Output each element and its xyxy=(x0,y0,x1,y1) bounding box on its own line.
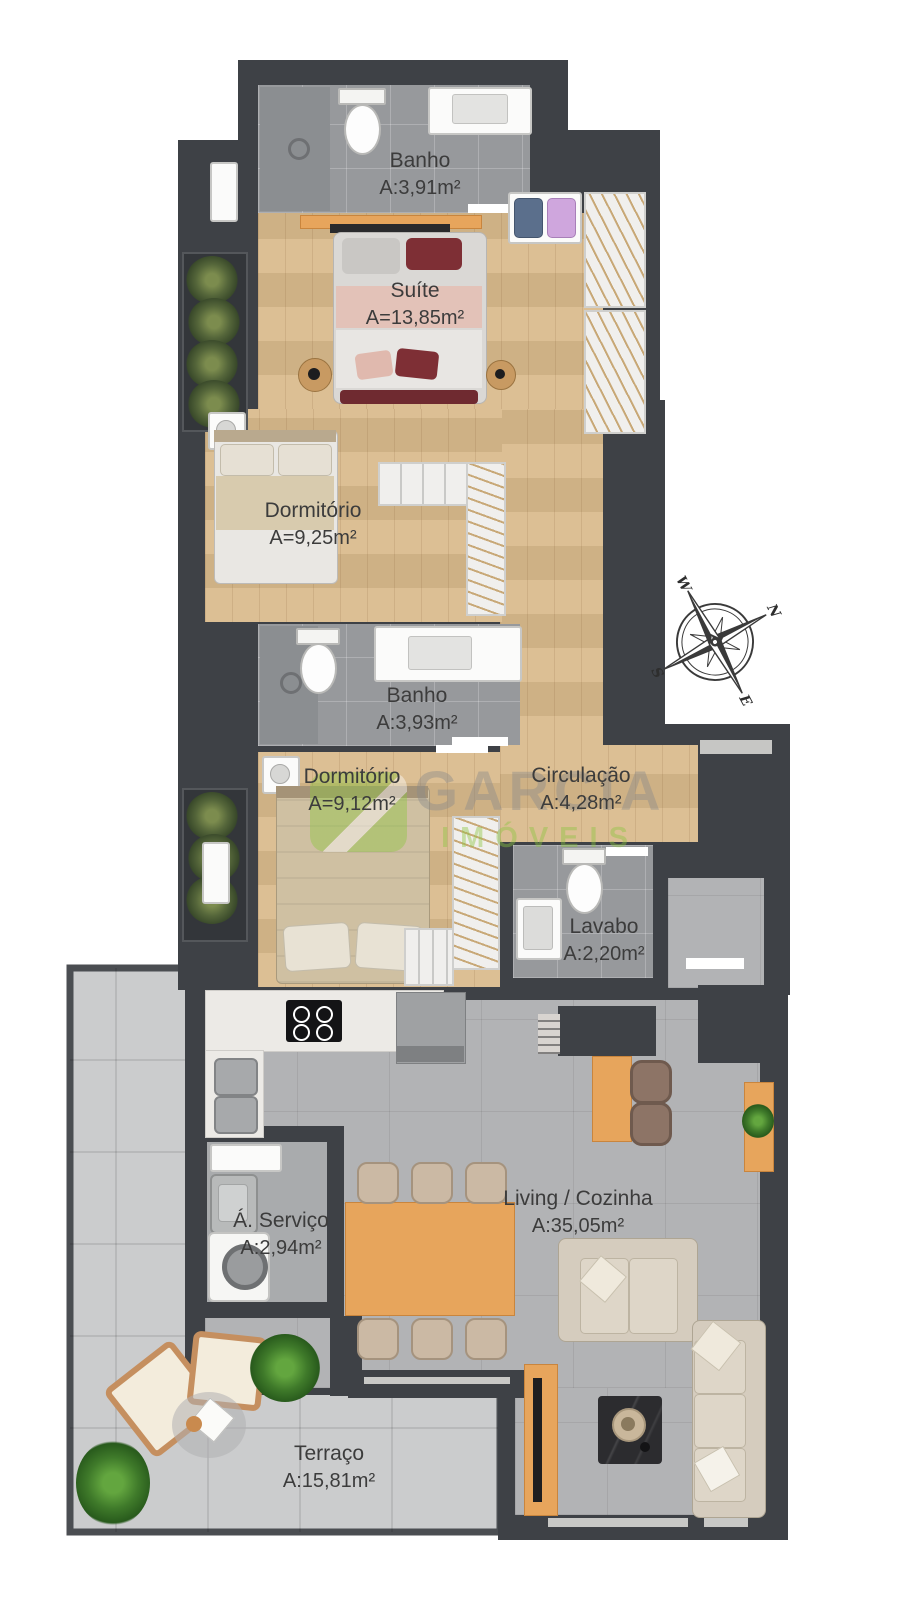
label-banho2: Banho A:3,93m² xyxy=(307,682,527,736)
floor-plan: N S E W GARCIA IMÓVEIS Banho A:3,91m² Su… xyxy=(0,0,900,1600)
dorm1-wardrobe-tall xyxy=(466,462,506,616)
dormitorio1-area: A=9,25m² xyxy=(203,525,423,551)
planter-upper-plant-2 xyxy=(188,298,240,346)
lavabo-name: Lavabo xyxy=(494,913,714,941)
compass-w: W xyxy=(672,573,694,596)
servico-shelf xyxy=(210,1144,282,1172)
banho1-sink-basin xyxy=(452,94,508,124)
dormitorio2-area: A=9,12m² xyxy=(242,791,462,817)
label-suite: Suíte A=13,85m² xyxy=(305,277,525,331)
banho2-name: Banho xyxy=(307,682,527,710)
dorm1-pillow-2 xyxy=(278,444,332,476)
stove-burner-3 xyxy=(293,1024,310,1041)
circulacao-area: A:4,28m² xyxy=(471,790,691,816)
terrace-window-glass xyxy=(364,1377,510,1384)
banho2-shower-drain-icon xyxy=(280,672,302,694)
label-lavabo: Lavabo A:2,20m² xyxy=(494,913,714,967)
bar-table xyxy=(592,1056,632,1142)
label-circulacao: Circulação A:4,28m² xyxy=(471,762,691,816)
bar-stool-1 xyxy=(630,1060,672,1104)
circ-window-sill xyxy=(700,740,772,754)
suite-area: A=13,85m² xyxy=(305,305,525,331)
sofa-3seat-cushion-2 xyxy=(694,1394,746,1448)
coffee-table-item-icon xyxy=(640,1442,650,1452)
suite-pillow-red xyxy=(406,238,462,270)
dining-chair-5 xyxy=(411,1318,453,1360)
compass-rose: N S E W xyxy=(645,572,785,712)
living-window-glass-2 xyxy=(704,1518,748,1527)
dorm1-headboard xyxy=(214,430,336,442)
servico-name: Á. Serviço xyxy=(171,1207,391,1235)
terrace-kettle-icon xyxy=(186,1416,202,1432)
dining-chair-6 xyxy=(465,1318,507,1360)
terraco-area: A:15,81m² xyxy=(219,1468,439,1494)
lavabo-area: A:2,20m² xyxy=(494,941,714,967)
suite-pillow-gray xyxy=(342,238,400,274)
wall-terrace-window xyxy=(348,1370,524,1398)
closet-wardrobe-2 xyxy=(584,310,646,434)
living-window-glass-1 xyxy=(548,1518,688,1527)
dining-chair-1 xyxy=(357,1162,399,1204)
dormitorio2-name: Dormitório xyxy=(242,763,462,791)
dining-chair-2 xyxy=(411,1162,453,1204)
closet-shirt-blue-icon xyxy=(514,198,543,238)
ac-unit-upper xyxy=(210,162,238,222)
planter-upper-plant-1 xyxy=(186,256,238,304)
circulacao-name: Circulação xyxy=(471,762,691,790)
dorm2-pillow-1 xyxy=(282,922,351,972)
compass-s: S xyxy=(647,665,666,681)
banho2-area: A:3,93m² xyxy=(307,710,527,736)
planter-lower-plant-1 xyxy=(186,792,238,840)
stove-burner-4 xyxy=(316,1024,333,1041)
bar-stool-2 xyxy=(630,1102,672,1146)
dorm2-door xyxy=(436,745,488,753)
label-dormitorio2: Dormitório A=9,12m² xyxy=(242,763,462,817)
suite-foot-bench xyxy=(340,390,478,404)
label-living: Living / Cozinha A:35,05m² xyxy=(468,1185,688,1239)
stove-burner-2 xyxy=(316,1006,333,1023)
closet-shirt-lavender-icon xyxy=(547,198,576,238)
label-banho1: Banho A:3,91m² xyxy=(310,147,530,201)
banho1-area: A:3,91m² xyxy=(310,175,530,201)
suite-lamp-right-icon xyxy=(495,369,505,379)
ac-unit-lower xyxy=(202,842,230,904)
kitchen-sink-basin-2 xyxy=(214,1096,258,1134)
coffee-table-bowl-icon xyxy=(621,1417,635,1431)
banho2-sink-basin xyxy=(408,636,472,670)
terrace-plant-corner xyxy=(76,1440,150,1526)
compass-e: E xyxy=(735,691,755,709)
closet-wardrobe-1 xyxy=(584,192,646,308)
dorm1-pillow-1 xyxy=(220,444,274,476)
dining-chair-4 xyxy=(357,1318,399,1360)
lavabo-toilet xyxy=(566,863,603,914)
kitchen-fridge-base xyxy=(396,1046,464,1062)
sofa-2seat-cushion-2 xyxy=(629,1258,678,1334)
suite-cushion-red xyxy=(395,348,440,380)
banho1-toilet-tank xyxy=(338,88,386,105)
kitchen-brick-niche xyxy=(538,1014,560,1054)
kitchen-island xyxy=(558,1006,656,1056)
kitchen-sink-basin-1 xyxy=(214,1058,258,1096)
sideboard-plant xyxy=(742,1104,774,1138)
dorm2-shelf xyxy=(404,928,454,986)
label-dormitorio1: Dormitório A=9,25m² xyxy=(203,497,423,551)
suite-name: Suíte xyxy=(305,277,525,305)
terrace-plant-top xyxy=(250,1334,320,1402)
terraco-name: Terraço xyxy=(219,1440,439,1468)
tv-screen xyxy=(533,1378,542,1502)
suite-lamp-left-icon xyxy=(308,368,320,380)
living-area: A:35,05m² xyxy=(468,1213,688,1239)
dormitorio1-name: Dormitório xyxy=(203,497,423,525)
label-terraco: Terraço A:15,81m² xyxy=(219,1440,439,1494)
banho1-name: Banho xyxy=(310,147,530,175)
watermark-subtitle: IMÓVEIS xyxy=(410,822,670,855)
stove-burner-1 xyxy=(293,1006,310,1023)
banho1-shower-drain-icon xyxy=(288,138,310,160)
living-name: Living / Cozinha xyxy=(468,1185,688,1213)
servico-area: A:2,94m² xyxy=(171,1235,391,1261)
label-servico: Á. Serviço A:2,94m² xyxy=(171,1207,391,1261)
compass-n: N xyxy=(763,601,784,622)
suite-cushion-pink xyxy=(354,350,393,381)
